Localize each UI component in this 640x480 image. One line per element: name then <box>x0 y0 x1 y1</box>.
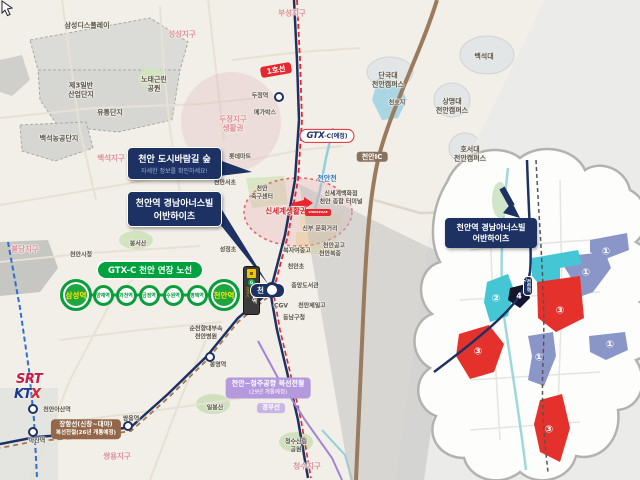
parcel-number: ① <box>606 340 614 351</box>
forest-callout[interactable]: 천안 도시바람길 숲 자세한 정보를 확인하세요! <box>127 147 222 180</box>
gtx-extension-title: GTX-C 천안 연장 노선 <box>98 262 202 278</box>
gtx-badge-suffix: -C(예정) <box>324 133 347 140</box>
parcel-number: ① <box>582 268 590 279</box>
forest-callout-title: 천안 도시바람길 숲 <box>130 152 219 165</box>
parcel-number: ③ <box>545 425 553 436</box>
cheongju-rail-sub: (29년 개통예정) <box>249 390 287 396</box>
apartment-callout-line1: 천안역 경남아너스빌 <box>130 196 219 209</box>
gtx-station-minor: 과천역 <box>116 285 137 306</box>
rail-icon: ≋ <box>247 269 256 278</box>
cloud-label-line1: 천안역 경남아너스빌 <box>456 223 525 232</box>
map-canvas: 삼성디스플레이성성지구부성지구제3일반 산업단지노태근린 공원유통단지백석농공단… <box>0 0 640 480</box>
station-dot-dujeong <box>274 92 284 102</box>
gtx-station-minor: 양재역 <box>93 285 114 306</box>
ktx-logo-kt: KT <box>14 387 31 402</box>
cheonan-station-dot <box>264 282 280 298</box>
gtx-station-minor: 수원역 <box>163 285 184 306</box>
gtx-station-minor: 평택역 <box>187 285 208 306</box>
station-dot-cheonanasan <box>28 404 38 414</box>
zoom-cloud <box>414 149 640 480</box>
station-dot-ssangyong <box>123 421 133 431</box>
cheongju-rail-badge: 천안~청주공항 복선전철(29년 개통예정) <box>226 378 311 399</box>
janghang-rail-title: 장항선(신창~대야) <box>59 420 112 428</box>
gyeongbu-line-badge: 경부선 <box>257 403 285 413</box>
gtx-station-major: 삼성역 <box>60 279 92 311</box>
apartment-callout[interactable]: 천안역 경남아너스빌 어반하이츠 <box>127 191 222 227</box>
cloud-label-line2: 어반하이츠 <box>473 234 510 243</box>
parcel-number: ② <box>492 294 500 305</box>
cursor-icon <box>0 0 15 17</box>
cheongju-rail-title: 천안~청주공항 복선전철 <box>232 380 305 388</box>
gtx-logo: GTX <box>306 131 324 141</box>
parcel-number: ① <box>602 247 610 258</box>
parcel-number: 4 <box>516 292 522 301</box>
forest-callout-sub: 자세한 정보를 확인하세요! <box>130 166 219 175</box>
parcel-number: ③ <box>474 347 482 358</box>
parcel-number: ③ <box>556 306 564 317</box>
apartment-callout-line2: 어반하이츠 <box>130 209 219 222</box>
station-dot-bongmyeong <box>205 352 215 362</box>
ktx-logo: KTX <box>14 387 40 402</box>
janghang-rail-sub: 복선전철(26년 개통예정) <box>56 430 116 436</box>
station-dot-asan <box>28 427 38 437</box>
srt-logo: SRT <box>16 372 42 387</box>
cheonan-ic-badge: 천안IC <box>357 152 388 162</box>
gtx-c-badge: GTX-C(예정) <box>299 129 354 143</box>
gtx-station-minor: 금정역 <box>139 285 160 306</box>
ktx-logo-x: X <box>31 387 40 402</box>
parcel-number: ① <box>535 353 543 364</box>
map-base <box>0 0 640 480</box>
janghang-rail-badge: 장항선(신창~대야)복선전철(26년 개통예정) <box>51 419 121 439</box>
gtx-station-major: 천안역 <box>208 279 240 311</box>
parcel-number: ② <box>519 275 527 286</box>
shinsegae-logo: SHINSEGAE <box>305 209 331 216</box>
cloud-apartment-label: 천안역 경남아너스빌 어반하이츠 <box>445 218 537 248</box>
